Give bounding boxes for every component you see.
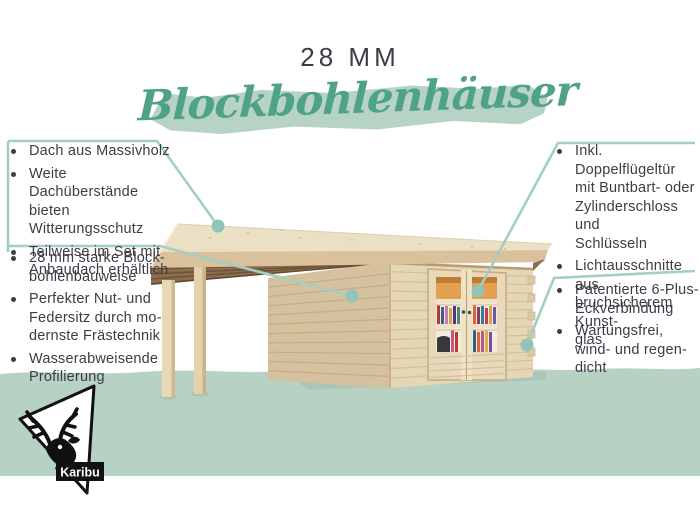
bullet-dot-icon (557, 149, 562, 154)
bullet-dot-icon (11, 357, 16, 362)
bullet-dot-icon (11, 172, 16, 177)
feature-text: Patentierte 6-Plus- Eckverbindung (575, 281, 699, 318)
feature-text: Wartungsfrei, wind- und regen- dicht (575, 322, 687, 378)
callout-dot-wall (346, 290, 359, 303)
bullet-dot-icon (557, 329, 562, 334)
feature-text: Perfekter Nut- und Federsitz durch mo- d… (29, 290, 162, 346)
feature-text: Wasserabweisende Profilierung (29, 350, 158, 387)
feature-item: Weite Dachüberstände bieten Witterungssc… (6, 165, 178, 239)
bullet-dot-icon (557, 264, 562, 269)
brand-label: Karibu (60, 466, 100, 480)
feature-item: 28 mm starke Block- bohlenbauweise (6, 249, 178, 286)
feature-text: Inkl. Doppelflügeltür mit Buntbart- oder… (575, 142, 700, 253)
feature-list-right-bottom: Patentierte 6-Plus- EckverbindungWartung… (552, 281, 700, 382)
feature-item: Wartungsfrei, wind- und regen- dicht (552, 322, 700, 378)
callout-dot-corner (521, 339, 534, 352)
side-wall (268, 262, 390, 388)
promo-page: 28 MM Blockbohlenhäuser (0, 0, 700, 525)
feature-item: Inkl. Doppelflügeltür mit Buntbart- oder… (552, 142, 700, 253)
bullet-dot-icon (557, 288, 562, 293)
bullet-dot-icon (11, 149, 16, 154)
double-door (428, 269, 506, 380)
feature-text: Dach aus Massivholz (29, 142, 170, 161)
callout-dot-roof (212, 220, 225, 233)
feature-item: Patentierte 6-Plus- Eckverbindung (552, 281, 700, 318)
bullet-dot-icon (11, 297, 16, 302)
feature-item: Wasserabweisende Profilierung (6, 350, 178, 387)
callout-dot-door (472, 285, 485, 298)
door-handle (468, 311, 472, 315)
feature-text: 28 mm starke Block- bohlenbauweise (29, 249, 165, 286)
feature-list-left-bottom: 28 mm starke Block- bohlenbauweisePerfek… (6, 249, 178, 391)
door-handle (462, 310, 466, 314)
feature-item: Perfekter Nut- und Federsitz durch mo- d… (6, 290, 178, 346)
feature-text: Weite Dachüberstände bieten Witterungssc… (29, 165, 178, 239)
feature-item: Dach aus Massivholz (6, 142, 178, 161)
bullet-dot-icon (11, 256, 16, 261)
